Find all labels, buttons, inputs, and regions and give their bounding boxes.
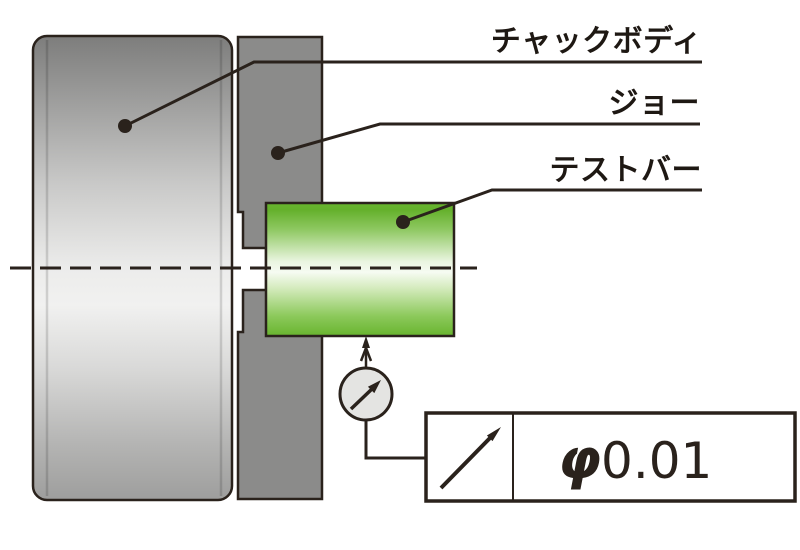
- test-bar-pointer-dot: [396, 215, 410, 229]
- tolerance-number: 0.01: [601, 432, 712, 490]
- label-test-bar: テストバー: [550, 154, 703, 187]
- phi-symbol: φ: [558, 427, 601, 491]
- label-chuck-body: チャックボディ: [491, 24, 702, 58]
- chuck-body-pointer-dot: [118, 119, 132, 133]
- tolerance-value: φ0.01: [558, 427, 712, 491]
- label-jaw: ジョー: [609, 87, 701, 120]
- jaw-pointer-dot: [271, 146, 285, 160]
- tolerance-frame: φ0.01: [426, 413, 795, 501]
- lathe-chuck-test-bar-runout-diagram: チャックボディ ジョー テストバー φ0.01: [0, 0, 800, 550]
